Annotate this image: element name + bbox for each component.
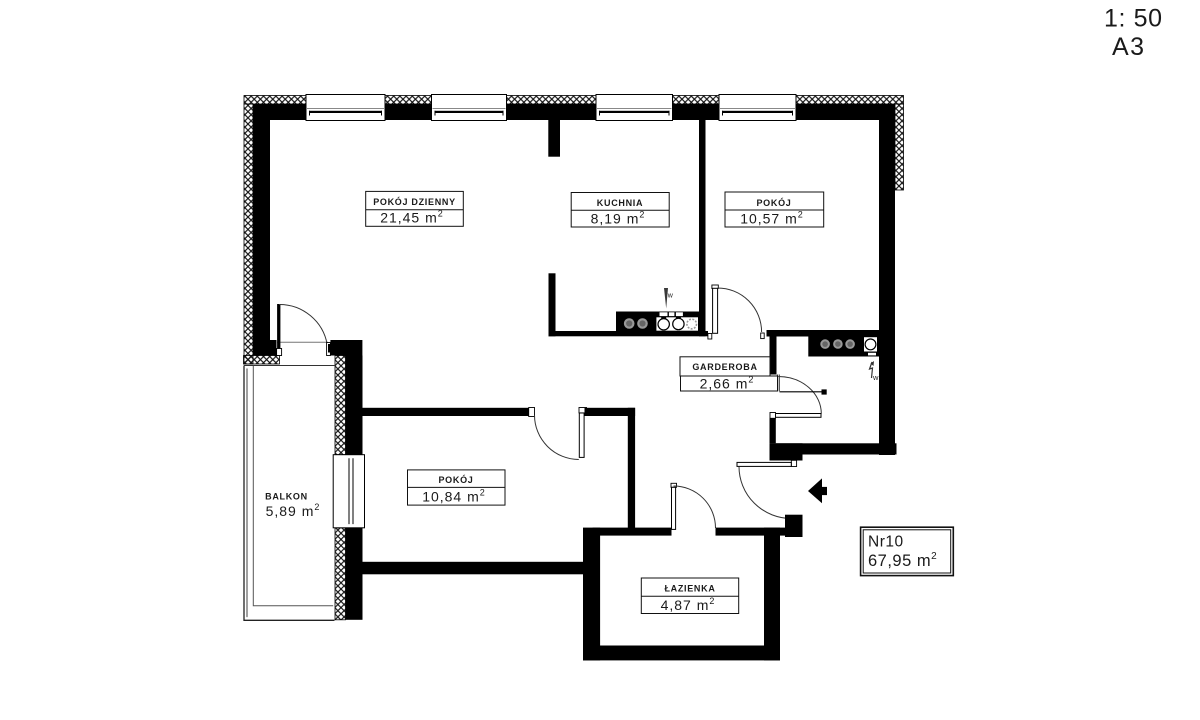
- svg-text:POKÓJ DZIENNY: POKÓJ DZIENNY: [373, 196, 456, 207]
- svg-text:KUCHNIA: KUCHNIA: [597, 198, 643, 208]
- svg-text:1: 50: 1: 50: [1104, 5, 1163, 33]
- svg-text:10,84 m2: 10,84 m2: [422, 488, 486, 505]
- svg-text:Nr10: Nr10: [868, 534, 904, 551]
- svg-text:5,89 m2: 5,89 m2: [266, 502, 321, 519]
- svg-text:ŁAZIENKA: ŁAZIENKA: [664, 584, 715, 594]
- svg-text:21,45 m2: 21,45 m2: [380, 209, 444, 226]
- svg-text:w: w: [667, 293, 674, 300]
- svg-text:POKÓJ: POKÓJ: [438, 474, 473, 485]
- svg-text:8,19 m2: 8,19 m2: [591, 210, 646, 227]
- svg-text:POKÓJ: POKÓJ: [756, 197, 791, 208]
- svg-text:10,57 m2: 10,57 m2: [740, 210, 804, 227]
- svg-text:A3: A3: [1112, 33, 1146, 61]
- svg-text:67,95 m2: 67,95 m2: [868, 551, 937, 570]
- svg-text:GARDEROBA: GARDEROBA: [692, 362, 757, 372]
- svg-text:4,87 m2: 4,87 m2: [661, 596, 716, 613]
- svg-text:w: w: [872, 373, 879, 382]
- svg-text:BALKON: BALKON: [265, 491, 308, 501]
- svg-text:2,66 m2: 2,66 m2: [700, 375, 755, 392]
